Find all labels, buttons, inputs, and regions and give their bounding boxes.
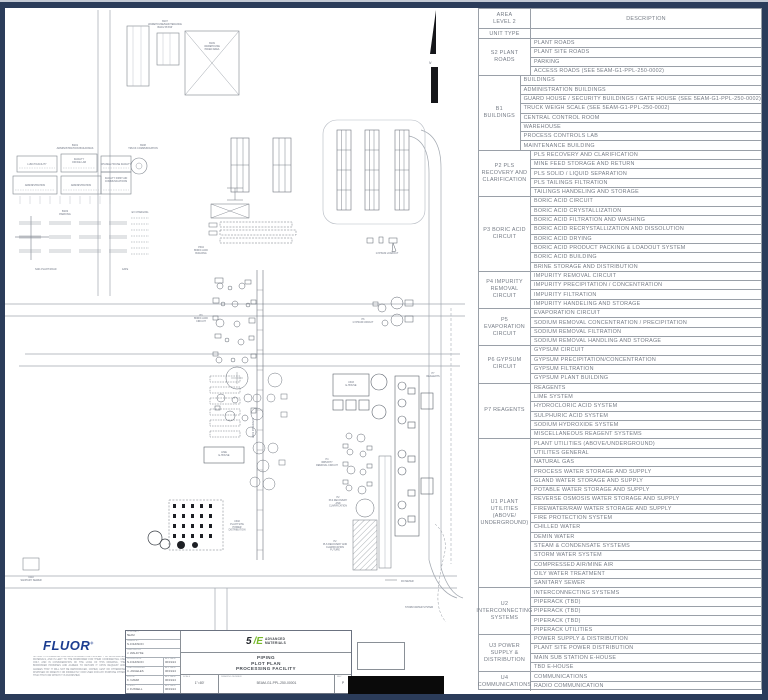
label-u201: U201 PIPERACK xyxy=(251,418,255,438)
legend-row: IMPURITY PRECIPITATION / CONCENTRATION xyxy=(531,281,761,290)
legend-row: SODIUM REMOVAL FILTRATION xyxy=(531,328,761,337)
title-block-personnel: CONTRACT5EAMDRAWN BYN.JOHNSONCHECKED BYJ… xyxy=(126,631,181,693)
logo-e-slash: /E xyxy=(254,636,263,647)
legend-row: BRINE STORAGE AND DISTRIBUTION xyxy=(531,263,761,271)
legend-row: REVERSE OSMOSIS WATER STORAGE AND SUPPLY xyxy=(531,495,761,504)
viewer-top-edge xyxy=(0,0,768,2)
legend-row: TAILINGS HANDELING AND STORAGE xyxy=(531,188,761,196)
registered-mark: ® xyxy=(90,641,93,646)
legend-group: B1 BUILDINGSBUILDINGSADMINISTRATION BUIL… xyxy=(479,76,761,151)
legend-group: S2 PLANT ROADSPLANT ROADSPLANT SITE ROAD… xyxy=(479,39,761,76)
p6-equipment xyxy=(373,297,413,326)
legend-row: PLANT UTILITIES (ABOVE/UNDERGROUND) xyxy=(531,439,761,448)
p4-equipment xyxy=(343,433,372,494)
legend-row: PIPERACK (TBD) xyxy=(531,598,761,607)
legend-group: U3 POWER SUPPLY & DISTRIBUTIONPOWER SUPP… xyxy=(479,635,761,672)
legend-row: IMPURITY FILTRATION xyxy=(531,290,761,299)
legend-row: PROCESS WATER STORAGE AND SUPPLY xyxy=(531,467,761,476)
label-ev: EV CHARGING xyxy=(132,211,149,214)
personnel-row: CHECKED BYJ. WALDYKE xyxy=(126,649,180,658)
legend-row: CENTRAL CONTROL ROOM xyxy=(521,114,761,123)
label-storm: STORM WATER SYSTEM xyxy=(405,606,433,609)
legend-row: DEMIN WATER xyxy=(531,533,761,542)
label-p6: P6GYPSUM CIRCUIT xyxy=(353,318,374,324)
legend-row: TBD E-HOUSE xyxy=(531,663,761,671)
legend-unit-cell: U4 COMMUNICATIONS xyxy=(479,672,531,691)
proprietary-notice: NOTICE: THIS DRAWING CONTAINS INTELLECTU… xyxy=(33,656,125,694)
label-u303: U303E-HOUSE xyxy=(346,381,357,387)
redacted-area xyxy=(348,676,444,694)
left-process-rows xyxy=(210,373,287,490)
fluor-logo: FLUOR® xyxy=(43,638,127,652)
piperack xyxy=(257,270,263,560)
legend-row: HYDROCLORIC ACID SYSTEM xyxy=(531,402,761,411)
legend-row: GYPSUM PLANT BUILDING xyxy=(531,374,761,382)
label-office: FACILITYOFFICE LAB xyxy=(72,158,86,164)
legend-row: SODIUM REMOVAL HANDLING AND STORAGE xyxy=(531,337,761,345)
legend-row: LIME SYSTEM xyxy=(531,393,761,402)
legend-row: PLANT ROADS xyxy=(531,39,761,48)
5e-advanced-materials-logo: 5 /E ADVANCED MATERIALS xyxy=(181,631,351,653)
legend-row: PLANT SITE POWER DISTRIBUTION xyxy=(531,644,761,653)
legend-row: WAREHOUSE xyxy=(521,123,761,132)
legend-row: BUILDINGS xyxy=(521,76,761,85)
boric-acid-building xyxy=(209,188,296,243)
legend-unit-cell: U2 INTERCONNECTING SYSTEMS xyxy=(479,588,531,634)
legend-subheader-blank xyxy=(531,29,761,38)
label-firstaid: FACILITY FIRST AIDCOMMUNICATIONS xyxy=(105,177,128,183)
legend-row: MAIN SUB STATION E-HOUSE xyxy=(531,654,761,663)
label-b101: B101ADMINISTRATION BUILDINGS xyxy=(57,143,94,150)
label-s201: S201 PLANT ROAD xyxy=(35,268,57,271)
label-p2: P2PLS RECOVERYANDCLARIFICATION xyxy=(329,496,348,508)
legend-unit-cell: P4 IMPURITY REMOVAL CIRCUIT xyxy=(479,272,531,308)
parking-area xyxy=(15,216,149,260)
legend-group: U4 COMMUNICATIONSCOMMUNICATIONSRADIO COM… xyxy=(479,672,761,691)
legend-row: FIREWATER/RAW WATER STORAGE AND SUPPLY xyxy=(531,505,761,514)
drawing-number: 5EAM-G1-PPL-250-00001 xyxy=(221,681,332,685)
logo-text: ADVANCED MATERIALS xyxy=(265,638,286,645)
label-u302: U302PLANT SITEPOWERDISTRIBUTION xyxy=(229,520,246,532)
legend-row: PLANT SITE ROADS xyxy=(531,48,761,57)
legend-row: POTABLE WATER STORAGE AND SUPPLY xyxy=(531,486,761,495)
legend-unit-cell: B1 BUILDINGS xyxy=(479,76,521,150)
label-gypsum-loadout: GYPSUM LOADOUT xyxy=(376,252,399,255)
label-admin1: ADMINISTRATION xyxy=(25,184,46,187)
legend-group: P2 PLS RECOVERY AND CLARIFICATIONPLS REC… xyxy=(479,151,761,198)
legend-row: BORIC ACID DRYING xyxy=(531,235,761,244)
label-gate: GATE xyxy=(122,268,129,271)
legend-unit-cell: U1 PLANT UTILITIES (ABOVE/ UNDERGROUND) xyxy=(479,439,531,587)
legend-row: BORIC ACID CRYSTALLIZATION xyxy=(531,207,761,216)
drawing-sheet: N B107WAREHOUSE/MAINTENANCEBLDG 56'X96' … xyxy=(5,8,762,694)
label-ro-meter: RO METER xyxy=(401,580,414,583)
roads xyxy=(5,10,465,648)
legend-row: COMMUNICATIONS xyxy=(531,672,761,682)
legend-unit-cell: U3 POWER SUPPLY & DISTRIBUTION xyxy=(479,635,531,671)
personnel-row: SUPERVISORN.JOHNSONAPP DATE06/19/24 xyxy=(126,658,180,667)
legend-group: U2 INTERCONNECTING SYSTEMSINTERCONNECTIN… xyxy=(479,588,761,635)
legend-row: GLAND WATER STORAGE AND SUPPLY xyxy=(531,477,761,486)
legend-row: TRUCK WEIGH SCALE (SEE 5EAM-G1-PPL-250-0… xyxy=(521,104,761,113)
legend-header-description: DESCRIPTION xyxy=(531,9,761,28)
personnel-row: DRAWN BYN.JOHNSON xyxy=(126,640,180,649)
label-admin2: ADMINISTRATION xyxy=(71,184,92,187)
legend-row: PIPERACK UTILITIES xyxy=(531,626,761,634)
legend-row: INTERCONNECTING SYSTEMS xyxy=(531,588,761,597)
legend-row: EVAPORATION CIRCUIT xyxy=(531,309,761,318)
legend-row: BORIC ACID BUILDING xyxy=(531,253,761,262)
area-legend-table: AREALEVEL 2 DESCRIPTION UNIT TYPE S2 PLA… xyxy=(478,8,762,690)
north-arrow: N xyxy=(429,10,438,103)
label-b103: B103PARKING xyxy=(59,209,70,216)
legend-row: PARKING xyxy=(531,58,761,67)
drawing-viewer: N B107WAREHOUSE/MAINTENANCEBLDG 56'X96' … xyxy=(0,0,768,700)
legend-row: PROCESS CONTROLS LAB xyxy=(521,132,761,141)
legend-header-area: AREALEVEL 2 xyxy=(479,9,531,28)
legend-row: PIPERACK (TBD) xyxy=(531,616,761,625)
drawing-number-cell: DRAWING NUMBER 5EAM-G1-PPL-250-00001 xyxy=(219,675,335,693)
label-lunch: LUNCH FACILITY xyxy=(27,163,47,166)
legend-row: SODIUM REMOVAL CONCENTRATION / PRECIPITA… xyxy=(531,318,761,327)
future-clarification xyxy=(353,456,391,570)
north-label: N xyxy=(429,61,432,65)
legend-group: P7 REAGENTSREAGENTSLIME SYSTEMHYDROCLORI… xyxy=(479,384,761,440)
legend-group: P5 EVAPORATION CIRCUITEVAPORATION CIRCUI… xyxy=(479,309,761,346)
label-p304: P304BORIC ACIDBUILDING xyxy=(194,246,208,255)
gypsum-loadout xyxy=(367,237,397,252)
plot-plan-svg: N B107WAREHOUSE/MAINTENANCEBLDG 56'X96' … xyxy=(5,8,473,694)
scale-cell: SCALE 1"=80' xyxy=(181,675,219,693)
legend-group: P3 BORIC ACID CIRCUITBORIC ACID CIRCUITB… xyxy=(479,197,761,272)
personnel-row: FLUORK. NAMMAPP DATE06/19/24 xyxy=(126,676,180,685)
legend-unit-cell: S2 PLANT ROADS xyxy=(479,39,531,75)
legend-row: OILY WATER TREATMENT xyxy=(531,570,761,579)
legend-unit-cell: P6 GYPSUM CIRCUIT xyxy=(479,346,531,382)
label-p3-circuit: P3BORIC ACIDCIRCUIT xyxy=(194,314,208,323)
legend-row: GUARD HOUSE / SECURITY BUILDINGS / GATE … xyxy=(521,95,761,104)
substation xyxy=(148,500,223,550)
legend-row: REAGENTS xyxy=(531,384,761,393)
legend-row: MISCELLANEOUS REAGENT SYSTEMS xyxy=(531,430,761,438)
legend-row: BORIC ACID FILTRATION AND WASHING xyxy=(531,216,761,225)
legend-unit-cell: P5 EVAPORATION CIRCUIT xyxy=(479,309,531,345)
legend-row: UTILITES GENERAL xyxy=(531,449,761,458)
rack-modules xyxy=(231,120,425,224)
legend-group: P4 IMPURITY REMOVAL CIRCUITIMPURITY REMO… xyxy=(479,272,761,309)
p7-rack xyxy=(395,376,433,536)
scale-value: 1"=80' xyxy=(183,681,216,685)
legend-group: U1 PLANT UTILITIES (ABOVE/ UNDERGROUND)P… xyxy=(479,439,761,588)
sanitary-structure xyxy=(23,558,39,570)
legend-row: SODIUM HYDROXIDE SYSTEM xyxy=(531,421,761,430)
storm-water-channel xyxy=(435,524,446,622)
legend-unit-cell: P2 PLS RECOVERY AND CLARIFICATION xyxy=(479,151,531,197)
legend-row: MINE FEED STORAGE AND RETURN xyxy=(531,160,761,169)
plot-plan: N B107WAREHOUSE/MAINTENANCEBLDG 56'X96' … xyxy=(5,8,473,694)
title-block: CONTRACT5EAMDRAWN BYN.JOHNSONCHECKED BYJ… xyxy=(125,630,352,694)
personnel-row: LEAD ENGINEERC. ANGELESAPP DATE06/19/24 xyxy=(126,667,180,676)
legend-row: ADMINISTRATION BUILDINGS xyxy=(521,86,761,95)
label-b107: B107WAREHOUSE/MAINTENANCEBLDG 56'X96' xyxy=(148,20,182,29)
label-change: CHANGE HOUSE FACILITY xyxy=(101,163,132,166)
legend-row: ACCESS ROADS (SEE 5EAM-G1-PPL-250-0002) xyxy=(531,67,761,75)
legend-row: POWER SUPPLY & DISTRIBUTION xyxy=(531,635,761,644)
legend-row: NATURAL GAS xyxy=(531,458,761,467)
legend-row: GYPSUM FILTRATION xyxy=(531,365,761,374)
personnel-row: CONTRACT5EAM xyxy=(126,631,180,640)
label-lime-ehouse: LIMEE-HOUSE xyxy=(219,451,230,457)
legend-row: IMPURITY HANDELING AND STORAGE xyxy=(531,300,761,308)
legend-row: BORIC ACID CIRCUIT xyxy=(531,197,761,206)
legend-row: PLS TAILINGS FILTRATION xyxy=(531,179,761,188)
legend-unit-type: UNIT TYPE xyxy=(479,29,531,38)
personnel-row: CLIENTJ. FUSSELLAPP DATE06/19/24 xyxy=(126,685,180,693)
legend-row: STORM WATER SYSTEM xyxy=(531,551,761,560)
legend-unit-cell: P3 BORIC ACID CIRCUIT xyxy=(479,197,531,271)
legend-row: BORIC ACID RECRYSTALLIZATION AND DISSOLU… xyxy=(531,225,761,234)
legend-subheader: UNIT TYPE xyxy=(479,29,761,39)
legend-row: PLS RECOVERY AND CLARIFICATION xyxy=(531,151,761,160)
legend-row: GYPSUM PRECIPITATION/CONCENTRATION xyxy=(531,356,761,365)
legend-body: S2 PLANT ROADSPLANT ROADSPLANT SITE ROAD… xyxy=(479,39,761,691)
legend-row: PLS SOLID / LIQUID SEPARATION xyxy=(531,169,761,178)
legend-row: CHILLED WATER xyxy=(531,523,761,532)
legend-row: STEAM & CONDENSATE SYSTEMS xyxy=(531,542,761,551)
label-p7: P7REAGENTS xyxy=(426,372,440,378)
legend-row: PIPERACK (TBD) xyxy=(531,607,761,616)
legend-row: FIRE PROTECTION SYSTEM xyxy=(531,514,761,523)
drawing-title: PIPING PLOT PLAN PROCESSING FACILITY xyxy=(181,653,351,675)
legend-row: IMPURITY REMOVAL CIRCUIT xyxy=(531,272,761,281)
stamp-box xyxy=(357,642,405,670)
legend-unit-cell: P7 REAGENTS xyxy=(479,384,531,439)
legend-row: GYPSUM CIRCUIT xyxy=(531,346,761,355)
legend-group: P6 GYPSUM CIRCUITGYPSUM CIRCUITGYPSUM PR… xyxy=(479,346,761,383)
label-p2-future: P2PLS RECOVERY ANDCLARIFICATIONFUTURE xyxy=(323,540,347,552)
legend-row: BORIC ACID PRODUCT PACKING & LOADOUT SYS… xyxy=(531,244,761,253)
p3-equipment xyxy=(213,278,256,421)
legend-row: SANITARY SEWER xyxy=(531,579,761,587)
legend-header: AREALEVEL 2 DESCRIPTION xyxy=(479,9,761,29)
legend-row: RADIO COMMUNICATION xyxy=(531,682,761,691)
legend-row: COMPRESSED AIR/MINE AIR xyxy=(531,561,761,570)
label-p4: P4IMPURITYREMOVAL CIRCUIT xyxy=(316,458,338,467)
legend-row: SULPHURIC ACID SYSTEM xyxy=(531,412,761,421)
label-sanitary: U110SANITARY SEWER xyxy=(20,576,41,582)
legend-row: MAINTENANCE BUILDING xyxy=(521,141,761,149)
label-b108: B108TRUCK COMMUNICATION xyxy=(128,144,158,150)
title-block-bottom: SCALE 1"=80' DRAWING NUMBER 5EAM-G1-PPL-… xyxy=(181,675,351,693)
label-b109: B109WAREHOUSEPAVED AREA xyxy=(204,42,220,51)
logo-5: 5 xyxy=(246,636,252,647)
warehouse-area xyxy=(127,26,239,95)
